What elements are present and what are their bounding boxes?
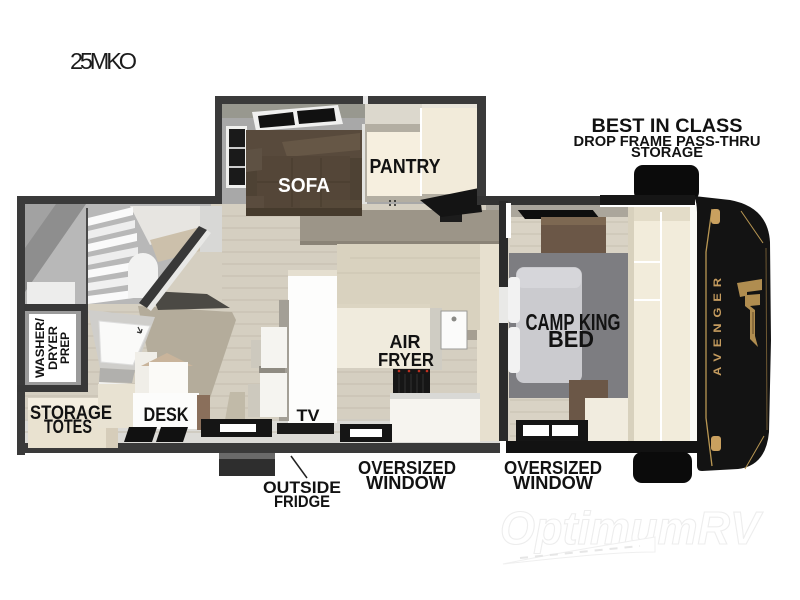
svg-text:TV: TV bbox=[297, 406, 321, 425]
svg-text:SOFA: SOFA bbox=[278, 175, 330, 197]
svg-text:25MKO: 25MKO bbox=[70, 48, 137, 74]
svg-text:STORAGE: STORAGE bbox=[631, 145, 703, 161]
svg-text:WINDOW: WINDOW bbox=[366, 473, 446, 493]
svg-text:BED: BED bbox=[548, 326, 594, 352]
svg-text:WINDOW: WINDOW bbox=[513, 473, 593, 493]
svg-text:WASHER/: WASHER/ bbox=[35, 317, 47, 378]
svg-text:FRIDGE: FRIDGE bbox=[274, 492, 330, 511]
svg-text:DESK: DESK bbox=[144, 405, 189, 426]
svg-text:AIR: AIR bbox=[390, 332, 421, 352]
svg-text:FRYER: FRYER bbox=[378, 350, 434, 370]
svg-text:DRYER: DRYER bbox=[48, 325, 60, 370]
svg-text:TOTES: TOTES bbox=[44, 417, 92, 438]
svg-text:AVENGER: AVENGER bbox=[712, 272, 724, 376]
svg-text:PANTRY: PANTRY bbox=[370, 156, 442, 178]
svg-text:PREP: PREP bbox=[60, 332, 72, 364]
